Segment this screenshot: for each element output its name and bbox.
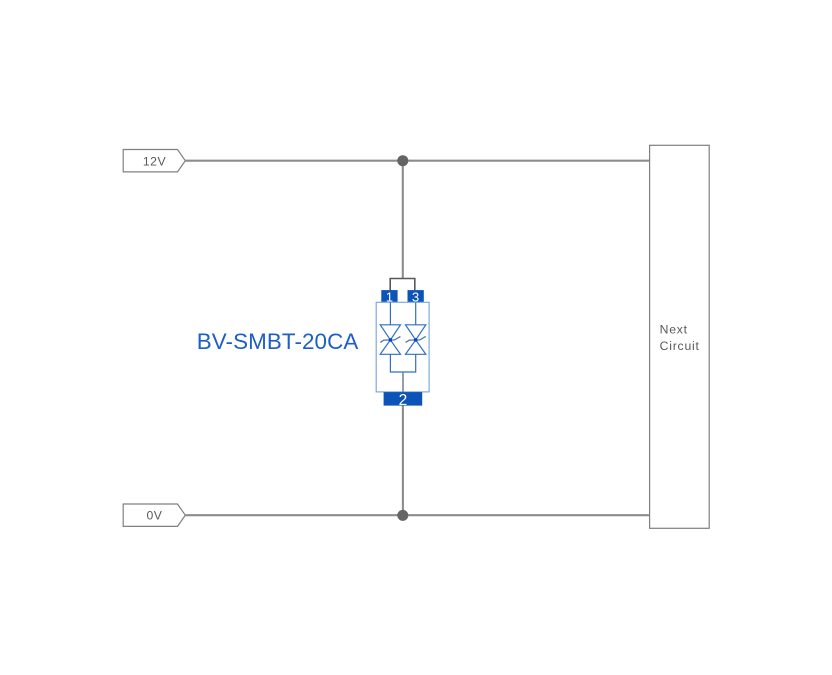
svg-text:BV-SMBT-20CA: BV-SMBT-20CA xyxy=(197,329,359,354)
svg-text:12V: 12V xyxy=(143,154,167,168)
svg-text:Next: Next xyxy=(660,323,688,337)
svg-text:Circuit: Circuit xyxy=(660,339,700,353)
svg-text:0V: 0V xyxy=(147,509,163,523)
